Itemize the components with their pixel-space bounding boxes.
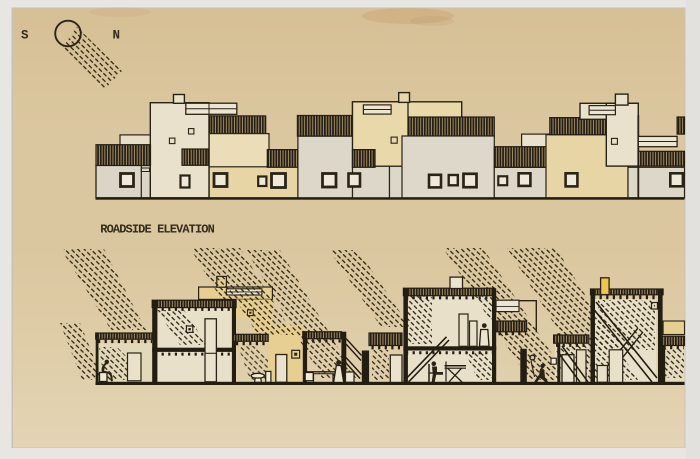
svg-text:ROADSIDE ELEVATION: ROADSIDE ELEVATION <box>100 223 215 237</box>
svg-text:S: S <box>21 29 29 43</box>
svg-text:N: N <box>113 29 121 43</box>
